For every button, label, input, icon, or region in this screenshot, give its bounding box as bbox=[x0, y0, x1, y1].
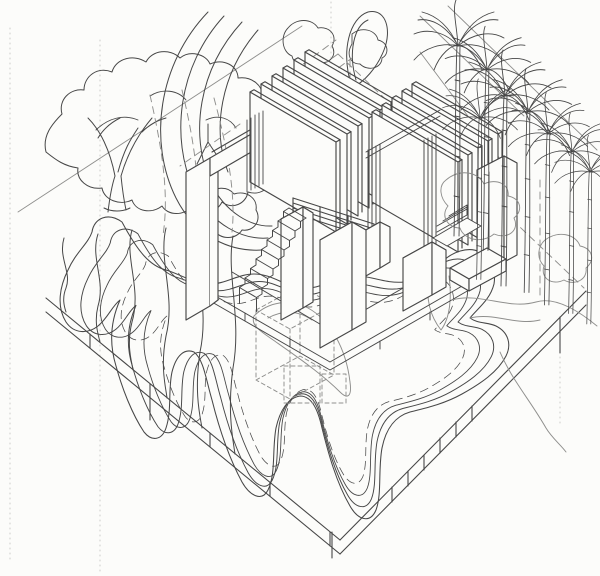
tower-block bbox=[281, 207, 313, 320]
drawing-sheet bbox=[0, 0, 600, 576]
drawing-canvas bbox=[0, 0, 600, 576]
